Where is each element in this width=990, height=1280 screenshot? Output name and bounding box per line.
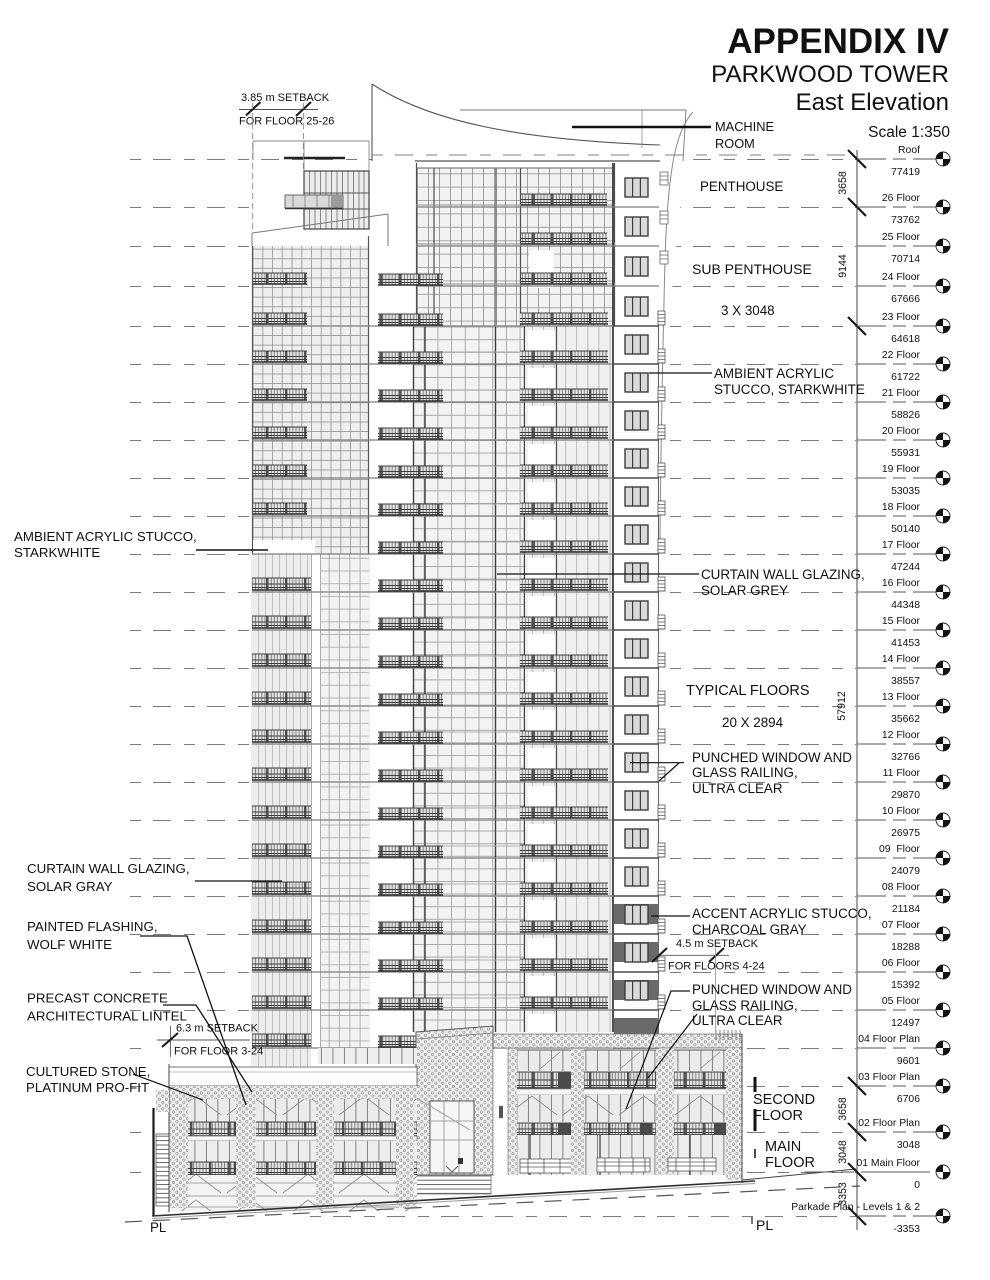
svg-text:FLOOR: FLOOR [753,1108,803,1124]
svg-text:38557: 38557 [891,676,920,687]
svg-text:03 Floor Plan: 03 Floor Plan [858,1072,920,1083]
svg-text:0: 0 [914,1180,920,1191]
svg-text:20 X 2894: 20 X 2894 [722,715,784,730]
svg-text:STARKWHITE: STARKWHITE [14,545,100,560]
svg-text:FOR FLOOR 3-24: FOR FLOOR 3-24 [174,1046,263,1058]
svg-text:3 X 3048: 3 X 3048 [721,303,775,318]
svg-text:3.85 m SETBACK: 3.85 m SETBACK [241,92,330,104]
svg-text:10 Floor: 10 Floor [882,806,921,817]
svg-text:08 Floor: 08 Floor [882,882,921,893]
svg-text:9601: 9601 [897,1056,920,1067]
svg-text:16 Floor: 16 Floor [882,578,921,589]
svg-text:PARKWOOD TOWER: PARKWOOD TOWER [711,61,949,88]
svg-text:04 Floor Plan: 04 Floor Plan [858,1034,920,1045]
svg-text:CHARCOAL GRAY: CHARCOAL GRAY [692,922,807,937]
svg-text:PLATINUM PRO-FIT: PLATINUM PRO-FIT [26,1080,149,1095]
svg-text:57912: 57912 [836,691,848,721]
svg-text:PUNCHED WINDOW AND: PUNCHED WINDOW AND [692,750,852,765]
svg-text:East Elevation: East Elevation [796,89,949,116]
svg-text:3658: 3658 [837,171,849,195]
svg-text:CURTAIN WALL GLAZING,: CURTAIN WALL GLAZING, [27,861,190,876]
svg-text:CURTAIN WALL GLAZING,: CURTAIN WALL GLAZING, [701,567,865,582]
svg-text:24 Floor: 24 Floor [882,272,921,283]
svg-text:TYPICAL FLOORS: TYPICAL FLOORS [686,683,810,699]
svg-text:SUB PENTHOUSE: SUB PENTHOUSE [692,261,812,277]
svg-text:22 Floor: 22 Floor [882,350,921,361]
svg-text:53035: 53035 [891,486,920,497]
svg-text:SOLAR GREY: SOLAR GREY [701,583,788,598]
svg-text:06 Floor: 06 Floor [882,958,921,969]
svg-text:Scale 1:350: Scale 1:350 [868,124,950,141]
svg-text:GLASS RAILING,: GLASS RAILING, [692,998,798,1013]
svg-text:3048: 3048 [837,1140,849,1164]
svg-text:CULTURED STONE,: CULTURED STONE, [26,1064,150,1079]
svg-text:24079: 24079 [891,866,920,877]
svg-text:25 Floor: 25 Floor [882,232,921,243]
svg-text:12 Floor: 12 Floor [882,730,921,741]
svg-text:55931: 55931 [891,448,920,459]
svg-text:SOLAR GRAY: SOLAR GRAY [27,879,113,894]
svg-text:PL: PL [756,1217,773,1233]
svg-text:3048: 3048 [897,1140,920,1151]
svg-text:SECOND: SECOND [753,1092,815,1108]
svg-text:AMBIENT ACRYLIC: AMBIENT ACRYLIC [714,366,834,381]
svg-text:STUCCO, STARKWHITE: STUCCO, STARKWHITE [714,382,865,397]
svg-text:Roof: Roof [898,145,920,156]
svg-text:23 Floor: 23 Floor [882,312,921,323]
svg-text:APPENDIX IV: APPENDIX IV [727,22,949,61]
svg-text:58826: 58826 [891,410,920,421]
svg-text:50140: 50140 [891,524,920,535]
svg-text:6.3 m SETBACK: 6.3 m SETBACK [176,1023,259,1035]
svg-text:64618: 64618 [891,334,920,345]
svg-text:09 Floor: 09 Floor [879,844,921,855]
svg-text:12497: 12497 [891,1018,920,1029]
svg-text:PUNCHED WINDOW AND: PUNCHED WINDOW AND [692,982,852,997]
svg-text:MACHINE: MACHINE [715,119,774,134]
svg-text:26975: 26975 [891,828,920,839]
svg-text:6706: 6706 [897,1094,920,1105]
svg-text:FLOOR: FLOOR [765,1155,815,1171]
svg-text:18288: 18288 [891,942,920,953]
svg-text:PL: PL [150,1220,166,1235]
svg-text:PENTHOUSE: PENTHOUSE [700,179,783,194]
svg-text:ULTRA CLEAR: ULTRA CLEAR [692,1013,783,1028]
svg-text:ACCENT ACRYLIC STUCCO,: ACCENT ACRYLIC STUCCO, [692,906,872,921]
svg-text:AMBIENT ACRYLIC STUCCO,: AMBIENT ACRYLIC STUCCO, [14,529,197,544]
svg-text:15 Floor: 15 Floor [882,616,921,627]
svg-text:GLASS RAILING,: GLASS RAILING, [692,765,798,780]
svg-text:11 Floor: 11 Floor [883,768,921,779]
svg-text:35662: 35662 [891,714,920,725]
svg-text:77419: 77419 [891,167,920,178]
svg-text:PAINTED FLASHING,: PAINTED FLASHING, [27,919,158,934]
svg-text:07 Floor: 07 Floor [882,920,921,931]
svg-text:ULTRA CLEAR: ULTRA CLEAR [692,781,783,796]
svg-text:9144: 9144 [837,254,849,278]
svg-text:70714: 70714 [891,254,920,265]
svg-text:32766: 32766 [891,752,920,763]
svg-text:20 Floor: 20 Floor [882,426,921,437]
svg-text:Parkade Plan - Levels 1 & 2: Parkade Plan - Levels 1 & 2 [791,1202,920,1213]
svg-text:29870: 29870 [891,790,920,801]
svg-text:61722: 61722 [891,372,920,383]
svg-text:MAIN: MAIN [765,1139,801,1155]
svg-text:PRECAST CONCRETE: PRECAST CONCRETE [27,991,168,1006]
svg-text:44348: 44348 [891,600,920,611]
svg-text:21 Floor: 21 Floor [882,388,921,399]
svg-text:47244: 47244 [891,562,920,573]
svg-text:02 Floor Plan: 02 Floor Plan [858,1118,920,1129]
svg-text:4.5 m SETBACK: 4.5 m SETBACK [676,938,759,950]
svg-text:15392: 15392 [891,980,920,991]
svg-text:01 Main Floor: 01 Main Floor [856,1158,920,1169]
svg-text:18 Floor: 18 Floor [882,502,921,513]
svg-text:17 Floor: 17 Floor [882,540,921,551]
svg-text:ROOM: ROOM [715,136,755,151]
svg-text:WOLF WHITE: WOLF WHITE [27,937,112,952]
svg-text:41453: 41453 [891,638,920,649]
svg-text:3658: 3658 [837,1097,849,1121]
svg-text:21184: 21184 [892,904,920,915]
svg-text:FOR FLOORS 4-24: FOR FLOORS 4-24 [668,961,765,973]
svg-text:73762: 73762 [891,215,920,226]
svg-text:26 Floor: 26 Floor [882,193,921,204]
svg-text:13 Floor: 13 Floor [882,692,921,703]
svg-text:05 Floor: 05 Floor [882,996,921,1007]
svg-text:-3353: -3353 [893,1224,920,1235]
svg-text:ARCHITECTURAL LINTEL: ARCHITECTURAL LINTEL [27,1009,187,1024]
svg-text:14 Floor: 14 Floor [882,654,921,665]
svg-text:19 Floor: 19 Floor [882,464,921,475]
svg-text:67666: 67666 [891,294,920,305]
svg-text:FOR FLOOR 25-26: FOR FLOOR 25-26 [239,116,334,128]
